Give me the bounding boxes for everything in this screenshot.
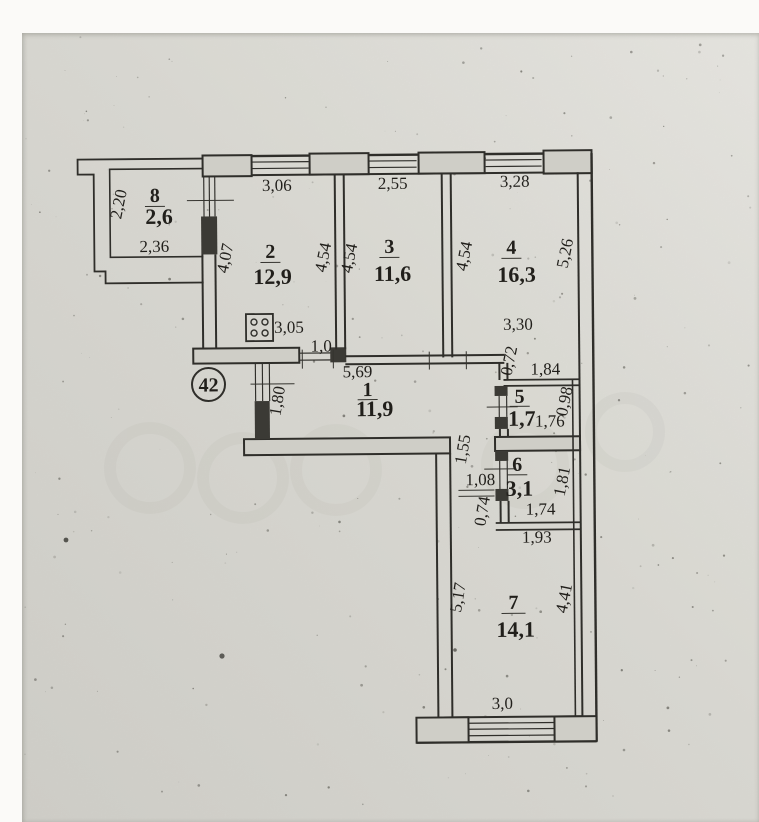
room2-number: 2: [265, 241, 275, 263]
room1-area: 11,9: [356, 396, 394, 421]
wall-pier: [543, 150, 591, 173]
kitchen-bottom-wall: [193, 348, 299, 364]
wall-pier: [418, 152, 484, 174]
room5-area: 1,7: [508, 406, 536, 431]
apartment-number: 42: [198, 374, 218, 396]
room2-area: 12,9: [253, 264, 292, 289]
dim-balcony-length: 2,36: [139, 237, 169, 256]
room4-number: 4: [506, 237, 516, 259]
room6-area: 3,1: [506, 476, 534, 501]
room3-area: 11,6: [374, 261, 412, 286]
wall-pier: [203, 155, 252, 176]
room6-number: 6: [512, 454, 522, 476]
floor-plan: 42 8 2,6 2 12,9 3 11,6 4 16,3 1 11,9 5 1…: [0, 0, 759, 822]
wall-pier: [416, 717, 468, 742]
room3-number: 3: [384, 236, 394, 258]
dim-room4-bottom: 3,30: [503, 315, 533, 334]
dim-room6-bottom: 1,74: [526, 499, 556, 518]
room5-number: 5: [515, 386, 525, 408]
wall-pier: [309, 153, 368, 175]
dim-hall-width: 5,69: [342, 362, 372, 381]
room7-area: 14,1: [496, 617, 535, 642]
dim-kitchen-door: 1,0: [310, 336, 331, 355]
room8-area: 2,6: [145, 204, 173, 229]
dim-room7-bottom: 3,0: [492, 694, 513, 713]
dim-room2-top: 3,06: [262, 176, 292, 195]
dim-room5-bottom: 1,76: [535, 411, 565, 430]
dim-room3-top: 2,55: [378, 174, 408, 193]
closet-divider-wall: [495, 436, 580, 451]
dim-corridor-door: 1,08: [465, 470, 495, 489]
wall-pier: [554, 716, 596, 741]
room7-number: 7: [508, 592, 518, 614]
dim-room4-top: 3,28: [500, 172, 530, 191]
dim-room5-top: 1,84: [530, 359, 560, 378]
room4-area: 16,3: [497, 262, 536, 287]
dim-kitchen-inner: 3,05: [274, 318, 304, 337]
dim-room6-wall: 1,93: [522, 528, 552, 547]
hall-bottom-wall: [244, 437, 450, 455]
